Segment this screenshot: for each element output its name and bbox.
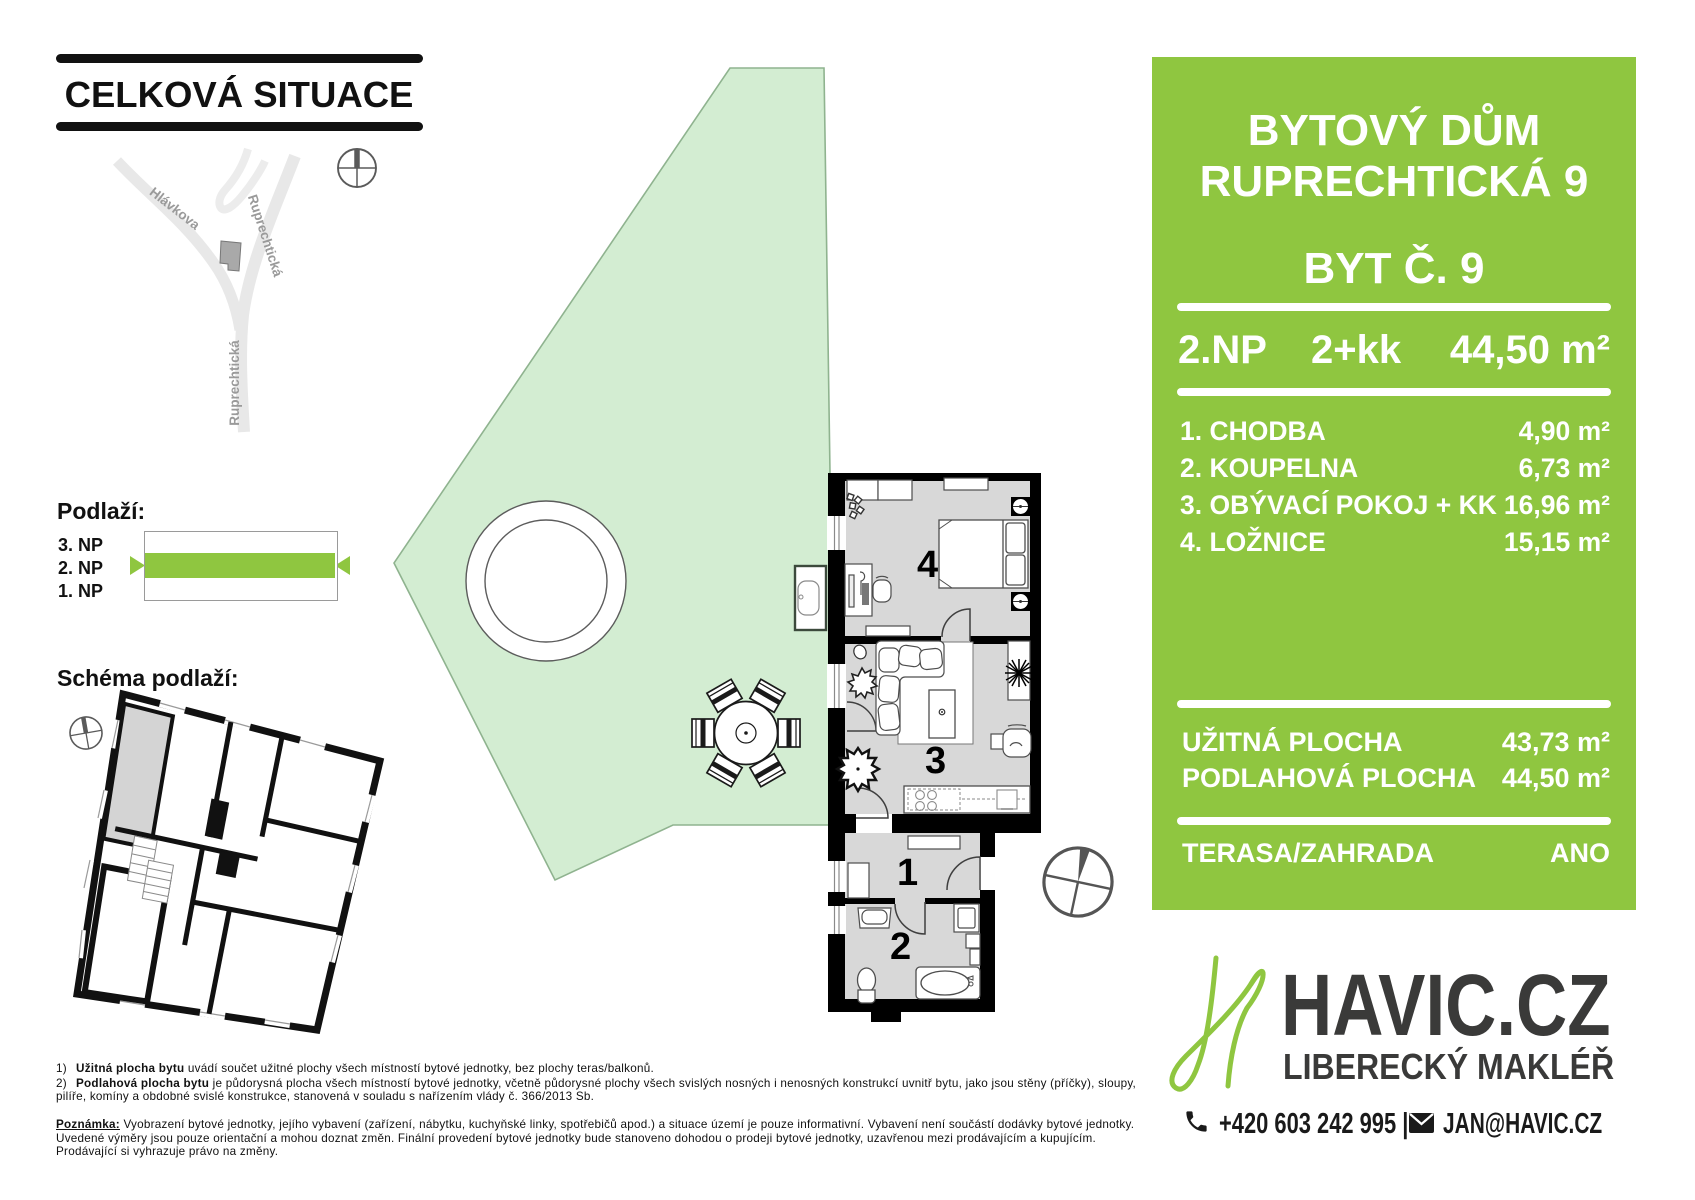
svg-text:4: 4 bbox=[917, 544, 938, 586]
svg-text:3: 3 bbox=[925, 740, 946, 782]
svg-text:1: 1 bbox=[897, 852, 918, 894]
svg-text:Hlávkova: Hlávkova bbox=[147, 184, 203, 233]
svg-text:2: 2 bbox=[890, 926, 911, 968]
svg-text:Ruprechtická: Ruprechtická bbox=[227, 340, 242, 426]
